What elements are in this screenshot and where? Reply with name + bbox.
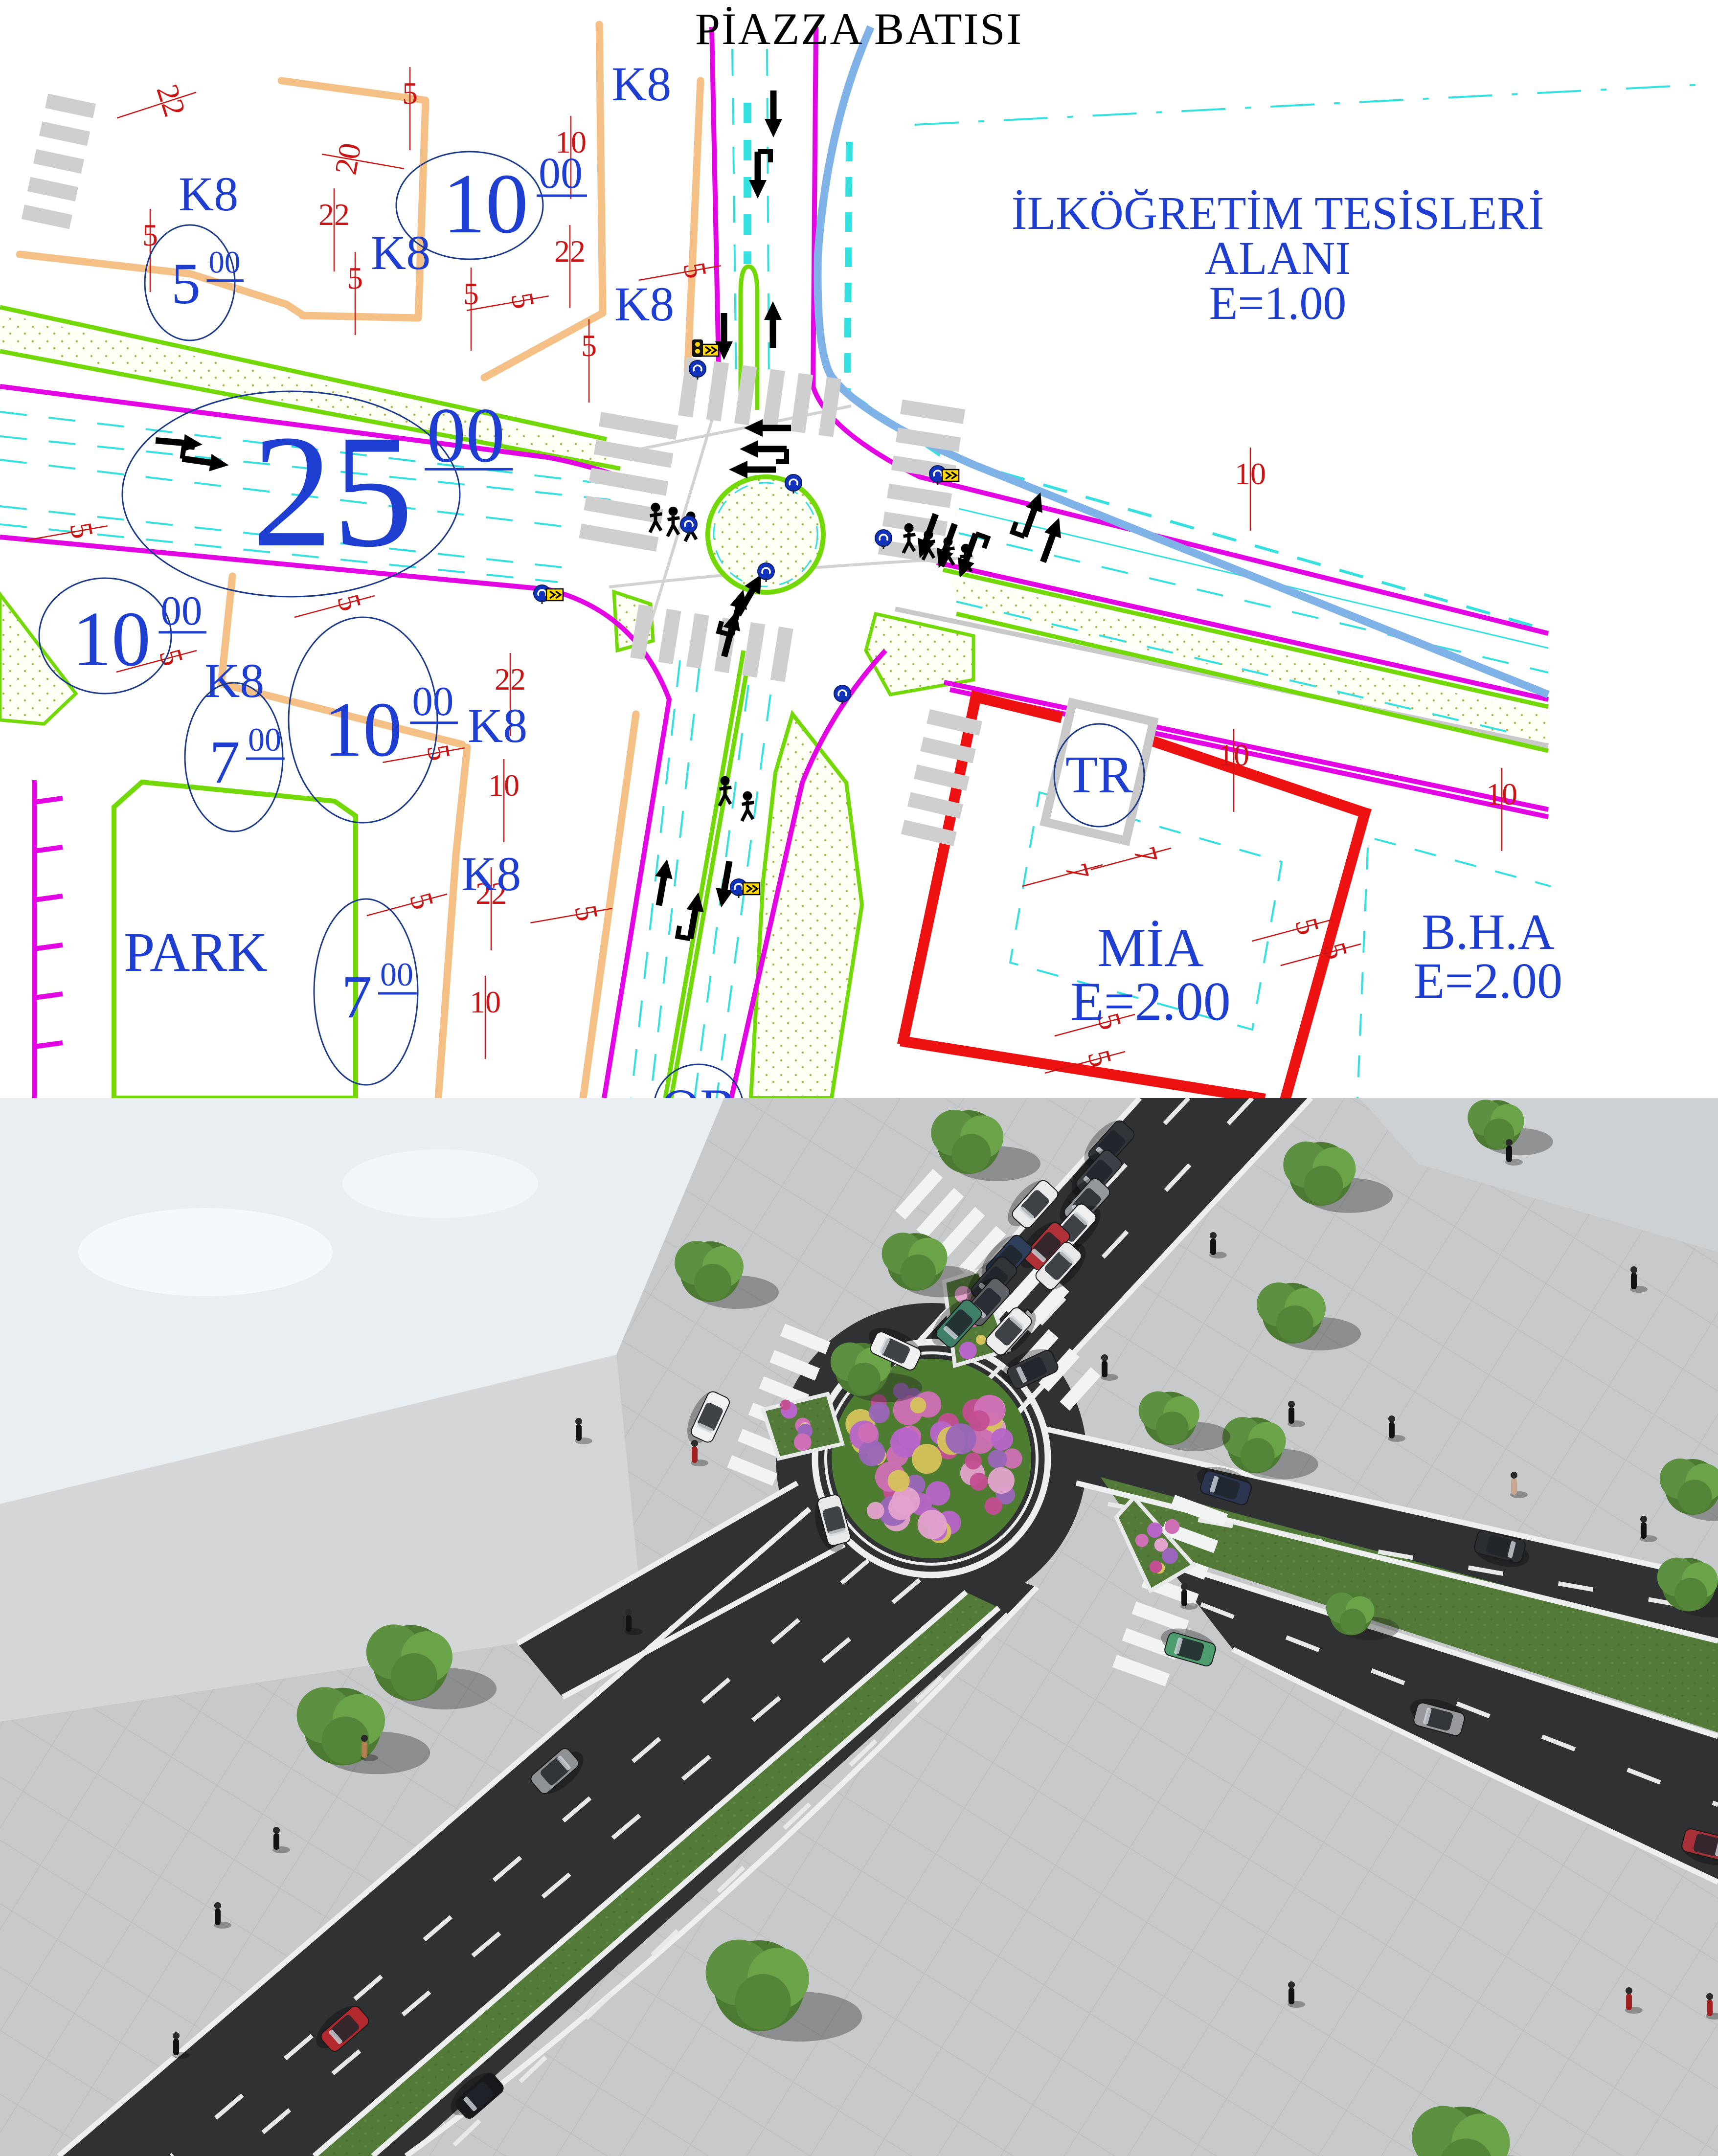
crosswalk-stripe: [22, 204, 72, 229]
pedestrian-body: [1181, 1590, 1187, 1606]
pedestrian-head: [1288, 1981, 1295, 1988]
zone-label-k8: K8: [468, 698, 527, 753]
traffic-light-lamp: [695, 342, 700, 347]
pedestrian-body: [1389, 1422, 1395, 1438]
plan-retaining-wall-hatch: [34, 780, 63, 1098]
flower-clump: [918, 1510, 947, 1539]
pedestrian-head: [721, 776, 730, 786]
crosswalk-stripe: [33, 149, 84, 174]
pedestrian-body: [626, 1615, 632, 1632]
pedestrian-body: [742, 801, 754, 821]
pedestrian-body: [273, 1833, 279, 1850]
pedestrian-head: [1101, 1354, 1108, 1361]
zone-label-k8: K8: [179, 167, 238, 221]
zoning-plan-map: 2252022555102255555552255101022101010775…: [0, 0, 1718, 1098]
pedestrian-head: [651, 503, 660, 512]
crosswalk-stripe: [27, 177, 78, 202]
pedestrian-body: [1288, 1988, 1294, 2004]
dimension-label: 10: [470, 985, 501, 1019]
chevron-sign-icon: [546, 589, 563, 601]
road-width-superscript: 00: [208, 245, 240, 280]
crosswalk-stripe: [39, 121, 90, 146]
tree-canopy: [1678, 1480, 1712, 1514]
flower-clump: [988, 1467, 1015, 1494]
island-flower: [1165, 1519, 1179, 1534]
road-width-label: 7: [341, 964, 372, 1031]
island-flower: [1135, 1534, 1149, 1547]
lane-arrow-icon: [764, 301, 782, 348]
pedestrian-body: [1210, 1238, 1216, 1255]
area-label-mia: MİA: [1097, 918, 1204, 978]
island-flower: [1162, 1548, 1178, 1564]
lane-arrow-icon: [181, 446, 230, 474]
dimension-label: 5: [504, 290, 541, 312]
dimension-label: 22: [495, 662, 526, 696]
pedestrian-body: [215, 1909, 221, 1925]
pedestrian-head: [1626, 1987, 1632, 1994]
tree-canopy: [1674, 1578, 1707, 1611]
crosswalk: [579, 412, 678, 552]
lane-arrow-head: [749, 180, 767, 199]
lane-arrow-head: [729, 461, 747, 478]
dimension-label: 5: [63, 520, 100, 541]
crosswalk-stripe: [770, 627, 793, 682]
chevron-sign-icon: [942, 470, 959, 481]
tree-canopy: [1340, 1609, 1366, 1635]
pedestrian-body: [362, 1741, 367, 1758]
area-label-bha: E=2.00: [1414, 953, 1562, 1009]
pedestrian-head: [625, 1609, 632, 1616]
crosswalk-stripe: [887, 484, 952, 508]
pedestrian-head: [1640, 1516, 1647, 1523]
dimension-label: 10: [1218, 738, 1249, 772]
flower-clump: [970, 1473, 988, 1491]
dimension-label: 22: [554, 234, 586, 269]
crosswalk-stripe: [791, 373, 813, 433]
intersection-3d-render: [0, 1098, 1718, 2156]
lane-arrow-head: [765, 119, 782, 137]
road-width-label: 10: [324, 686, 402, 773]
crosswalk: [901, 709, 982, 846]
sign-disc: [689, 360, 706, 377]
island-flower: [1147, 1523, 1163, 1538]
crosswalk-stripe: [686, 613, 709, 669]
crosswalk: [22, 93, 96, 229]
dimension-label: 10: [1486, 777, 1517, 811]
pedestrian-body: [1707, 1999, 1713, 2016]
area-label-school: E=1.00: [1209, 277, 1347, 329]
pedestrian-body: [1511, 1478, 1517, 1495]
crosswalk-stripe: [579, 524, 658, 552]
pedestrian-head: [1506, 1139, 1513, 1146]
pedestrian-body: [1626, 1994, 1632, 2010]
traffic-light-lamp: [695, 349, 700, 354]
island-flower: [976, 1335, 986, 1345]
pedestrian-body: [692, 1446, 698, 1463]
crosswalk-stripe: [734, 365, 757, 425]
pedestrian-body: [1102, 1361, 1108, 1377]
area-label-bha: B.H.A: [1422, 904, 1555, 960]
flower-clump: [858, 1423, 878, 1443]
dimension-label: 10: [488, 768, 520, 803]
zone-label-k8: K8: [204, 653, 264, 708]
road-width-superscript: 00: [380, 956, 413, 993]
lane-arrow-icon: [650, 858, 676, 907]
lane-arrow-head: [764, 301, 782, 320]
sign-disc: [758, 563, 774, 580]
pedestrian-head: [743, 791, 752, 801]
zone-label-k8: K8: [461, 847, 521, 901]
area-label-school: ALANI: [1205, 232, 1351, 284]
dimension-label: 5: [581, 328, 597, 363]
pedestrian-body: [1506, 1145, 1512, 1162]
tree-canopy: [391, 1653, 437, 1700]
pedestrian-head: [361, 1735, 368, 1742]
pedestrian-head: [924, 530, 933, 539]
lane-arrow-head: [209, 454, 230, 474]
dimension-label: 20: [328, 140, 367, 177]
sign-disc: [875, 530, 892, 546]
pedestrian-head: [1511, 1472, 1517, 1479]
page-title: PİAZZA BATISI: [0, 3, 1718, 55]
pedestrian-head: [669, 507, 678, 516]
pedestrian-icon: [742, 791, 754, 821]
dimension-label: 5: [463, 276, 479, 311]
sign-disc: [680, 516, 697, 533]
chevron-sign-icon: [702, 344, 719, 356]
area-label-school: İLKÖĞRETİM TESİSLERİ: [1012, 187, 1544, 239]
crosswalk-stripe: [658, 609, 681, 664]
crosswalk-stripe: [706, 361, 729, 421]
pedestrian-head: [1210, 1232, 1217, 1239]
dimension-label: 5: [1288, 914, 1326, 938]
tree-canopy: [1304, 1166, 1343, 1205]
pedestrian-body: [1288, 1407, 1294, 1424]
lane-arrow-head: [183, 434, 203, 453]
sign-disc: [785, 474, 802, 491]
crosswalk-stripe: [45, 93, 96, 118]
roundabout-sign-icon: [834, 685, 851, 704]
dimension-label: 5: [568, 902, 605, 924]
tree-canopy: [1156, 1412, 1189, 1444]
tree-canopy: [848, 1363, 881, 1395]
pedestrian-head: [944, 537, 953, 546]
dimension-label: 5: [677, 260, 713, 281]
chevron-sign-icon: [743, 883, 760, 895]
dimension-label: 5: [347, 261, 363, 295]
pedestrian-head: [273, 1827, 280, 1834]
pedestrian-icon: [668, 507, 680, 537]
plan-school-boundary-blue: [818, 27, 1548, 695]
dimension-label: 22: [318, 197, 350, 232]
road-width-label: 10: [72, 595, 151, 682]
tree-canopy: [1276, 1305, 1313, 1343]
flower-clump: [926, 1481, 950, 1505]
lane-arrow-icon: [740, 440, 787, 462]
road-width-label: 7: [209, 729, 240, 796]
pedestrian-body: [1641, 1522, 1647, 1539]
pedestrian-head: [1388, 1415, 1395, 1422]
zone-label-k8: K8: [611, 57, 671, 111]
tree-canopy: [901, 1255, 936, 1290]
flower-clump: [965, 1453, 981, 1469]
flower-clump: [910, 1397, 926, 1414]
pedestrian-head: [214, 1902, 221, 1909]
road-width-superscript: 00: [539, 149, 583, 198]
road-width-superscript: 00: [160, 588, 202, 634]
tree-canopy: [951, 1134, 991, 1173]
island-flower: [1150, 1560, 1162, 1573]
tree-canopy: [694, 1264, 731, 1301]
road-width-label: 5: [171, 251, 201, 316]
pedestrian-head: [173, 2032, 180, 2039]
crosswalk-stripe: [589, 468, 669, 495]
pedestrian-head: [961, 544, 971, 553]
pedestrian-body: [173, 2039, 179, 2055]
flower-clump: [888, 1470, 910, 1492]
dimension-label: 5: [402, 76, 418, 111]
dimension-label: 7: [1127, 843, 1165, 867]
pedestrian-body: [576, 1424, 582, 1441]
traffic-light-icon: [692, 339, 703, 357]
flower-clump: [991, 1428, 1013, 1450]
island-flower: [794, 1434, 812, 1451]
dimension-label: 22: [150, 80, 192, 121]
pedestrian-head: [691, 1440, 698, 1447]
pedestrian-head: [1630, 1266, 1637, 1273]
flower-clump: [869, 1402, 890, 1423]
dimension-label: 5: [142, 218, 158, 252]
pedestrian-body: [668, 516, 680, 537]
road-width-superscript: 00: [412, 678, 453, 724]
area-label-park: PARK: [124, 921, 268, 983]
screenshot-root: PİAZZA BATISI: [0, 0, 1718, 2156]
zone-label-k8: K8: [371, 225, 430, 280]
tree-canopy: [1241, 1438, 1275, 1472]
zone-label-k8: K8: [614, 277, 674, 331]
dimension-label: 5: [1317, 939, 1355, 963]
dimension-label: 10: [1235, 456, 1266, 491]
dimension-label: 5: [331, 590, 368, 614]
area-label-mia: E=2.00: [1070, 971, 1231, 1032]
tree-canopy: [735, 1974, 791, 2030]
road-width-superscript: 00: [248, 721, 281, 758]
lane-arrow-head: [1044, 515, 1067, 538]
pedestrian-head: [1288, 1401, 1295, 1408]
flower-clump: [867, 1502, 884, 1520]
flower-clump: [988, 1450, 1007, 1469]
lane-arrow-head: [740, 440, 758, 458]
road-width-superscript: 00: [427, 391, 505, 478]
dimension-label: 5: [420, 742, 457, 764]
sign-disc: [834, 685, 851, 702]
dimension-label: 5: [153, 645, 190, 669]
flower-clump: [985, 1497, 1002, 1515]
roundabout-sign-icon: [680, 516, 697, 535]
dimension-label: 5: [1081, 1046, 1119, 1070]
dimension-label: 5: [403, 889, 441, 913]
ob-label: OB: [661, 1078, 736, 1098]
crosswalk-stripe: [900, 400, 965, 424]
crosswalk-stripe: [743, 622, 766, 677]
road-width-label: 25: [252, 402, 413, 581]
pedestrian-body: [1631, 1273, 1637, 1289]
pedestrian-head: [1706, 1993, 1713, 2000]
road-width-label: 10: [443, 156, 528, 251]
crosswalk-stripe: [599, 412, 678, 440]
island-flower: [959, 1342, 977, 1359]
flower-clump: [912, 1444, 942, 1474]
lane-arrow-head: [713, 888, 733, 909]
dimension-label: 7: [1059, 859, 1096, 883]
flower-clump: [859, 1440, 885, 1466]
pedestrian-head: [575, 1418, 582, 1425]
tr-label: TR: [1065, 746, 1133, 804]
pedestrian-head: [904, 523, 914, 533]
island-flower: [780, 1400, 791, 1410]
flower-clump: [969, 1410, 990, 1431]
pedestrian-head: [1181, 1583, 1188, 1590]
